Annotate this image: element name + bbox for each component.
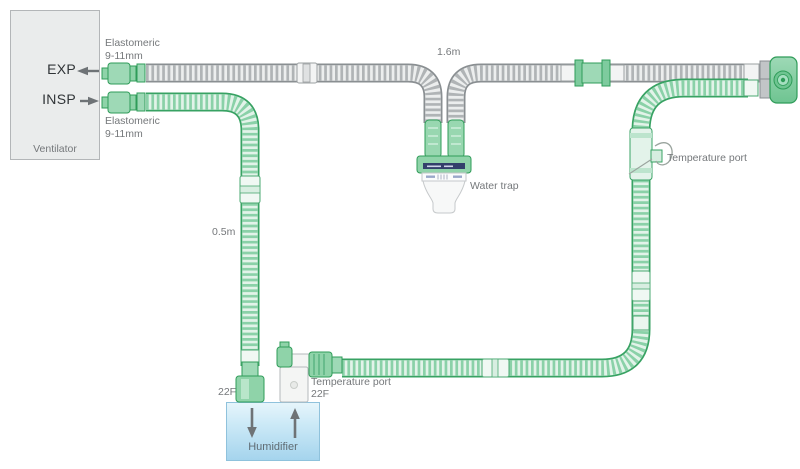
humidifier-inlet-size-label: 22F — [218, 386, 236, 399]
humidifier-label: Humidifier — [226, 441, 320, 454]
insp-port-spec-label: Elastomeric 9-11mm — [105, 115, 160, 141]
exp-label: EXP — [38, 63, 76, 76]
ventilator-label: Ventilator — [10, 143, 100, 156]
humidifier-outlet-size-label: 22F — [311, 388, 329, 401]
breathing-circuit-diagram: EXP INSP Ventilator Elastomeric 9-11mm E… — [0, 0, 800, 469]
expiratory-length-label: 1.6m — [437, 46, 460, 59]
insp-label: INSP — [32, 93, 76, 106]
labels-layer: EXP INSP Ventilator Elastomeric 9-11mm E… — [0, 0, 800, 469]
exp-port-spec-label: Elastomeric 9-11mm — [105, 37, 160, 63]
inspiratory-length-label: 0.5m — [212, 226, 235, 239]
temperature-port-right-label: Temperature port — [667, 152, 747, 165]
water-trap-label: Water trap — [470, 180, 519, 193]
